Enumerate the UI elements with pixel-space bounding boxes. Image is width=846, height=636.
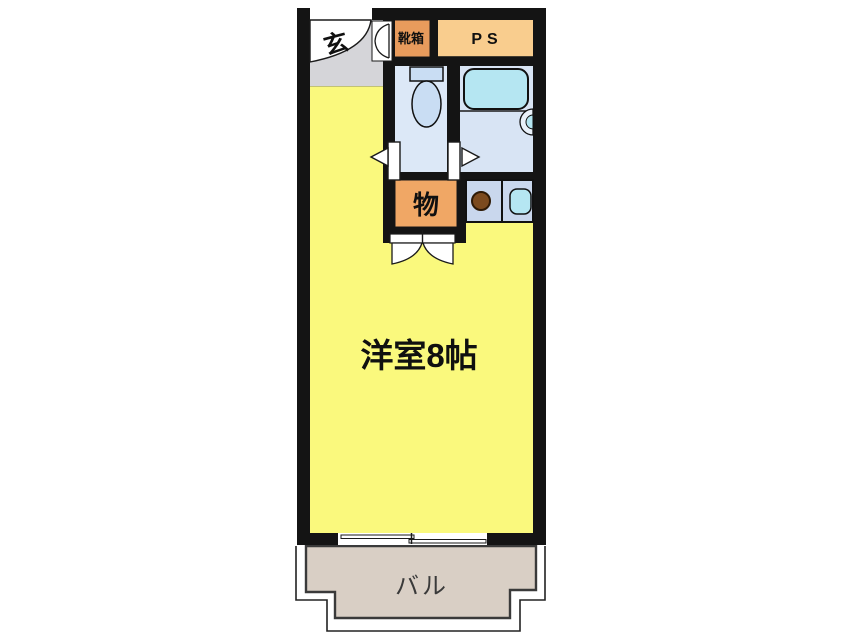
wall-bottom-right	[487, 533, 546, 545]
toilet-door-leaf	[388, 142, 400, 180]
shoe-box-label: 靴箱	[398, 31, 424, 46]
toilet-bowl	[412, 81, 441, 127]
balcony-sliding-window	[338, 533, 487, 545]
closet-label: 物	[413, 190, 439, 220]
kitchen-sink	[510, 189, 531, 214]
floor-plan-drawing: 玄 靴箱 PS 物 洋室8帖 バル	[0, 0, 846, 636]
sliding-window-pane-right	[409, 540, 486, 544]
toilet-fixture	[410, 67, 443, 127]
sliding-window-pane-left	[341, 535, 414, 539]
wall-shoebox-ps-gap	[430, 20, 438, 57]
bathtub	[464, 69, 528, 109]
wall-closet-kitchen-divider	[457, 180, 466, 227]
balcony-label: バル	[395, 573, 449, 600]
shoebox-door	[372, 21, 392, 61]
toilet-tank	[410, 67, 443, 81]
wall-below-bath	[383, 172, 546, 180]
wall-below-top-strip	[383, 57, 546, 66]
kitchen-burner	[472, 192, 490, 210]
main-room-label: 洋室8帖	[360, 337, 477, 374]
wall-top	[372, 8, 546, 20]
pipe-space-label: PS	[471, 31, 502, 48]
floor-plan-page: 玄 靴箱 PS 物 洋室8帖 バル	[0, 0, 846, 636]
kitchen-counter	[466, 180, 533, 222]
wall-right	[533, 8, 546, 545]
wall-left	[297, 8, 310, 545]
wall-bottom-left	[297, 533, 338, 545]
bath-door-leaf	[448, 142, 460, 180]
